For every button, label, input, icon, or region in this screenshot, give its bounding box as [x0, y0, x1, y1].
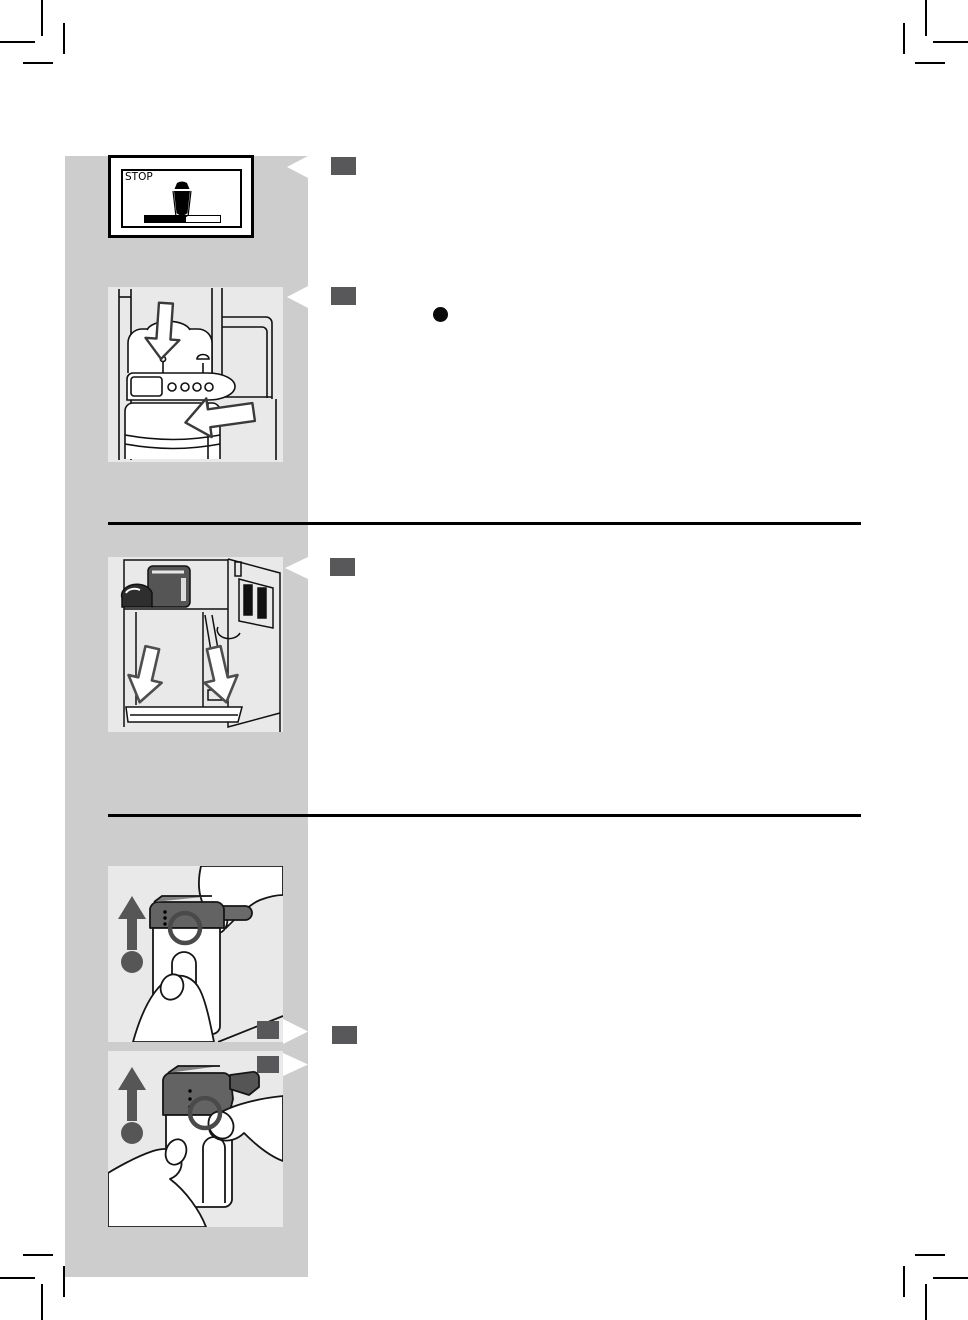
step-marker	[331, 287, 356, 305]
sub-step-marker	[257, 1021, 279, 1039]
crop-mark	[0, 41, 35, 43]
crop-mark	[41, 1284, 43, 1320]
figure-5-press-button	[108, 1051, 283, 1227]
machine-outline	[119, 288, 276, 460]
crop-mark	[925, 1284, 927, 1320]
display-screen-frame: STOP	[121, 169, 242, 228]
crop-mark	[0, 1277, 35, 1279]
crop-mark	[933, 41, 968, 43]
section-divider	[108, 814, 861, 817]
crop-mark	[63, 23, 65, 54]
crop-mark	[915, 1254, 945, 1256]
sub-step-marker	[257, 1056, 279, 1073]
carafe-lid	[163, 1073, 233, 1115]
step-marker	[331, 157, 356, 175]
step-marker	[332, 1026, 357, 1044]
section-divider	[108, 522, 861, 525]
crop-mark	[915, 62, 945, 64]
progress-bar-fill	[145, 216, 186, 222]
step-marker	[330, 558, 355, 576]
down-arrow-icon	[123, 644, 169, 706]
crop-mark	[41, 0, 43, 36]
stop-label: STOP	[125, 171, 153, 183]
progress-bar	[144, 215, 221, 223]
figure-1-display-screen: STOP	[108, 155, 254, 238]
up-arrow-icon	[118, 896, 146, 973]
down-arrow-icon	[197, 644, 243, 706]
crop-mark	[23, 62, 53, 64]
figure-2-insert-carafe	[108, 287, 283, 462]
figure-3-open-door	[108, 557, 283, 732]
bullet-point-icon	[433, 307, 448, 322]
up-arrow-icon	[118, 1067, 146, 1144]
crop-mark	[903, 1266, 905, 1297]
manual-page: STOP	[0, 0, 968, 1320]
figure-4-lift-carafe	[108, 866, 283, 1042]
crop-mark	[23, 1254, 53, 1256]
crop-mark	[903, 23, 905, 54]
carafe-spout	[230, 1072, 259, 1095]
crop-mark	[925, 0, 927, 36]
crop-mark	[933, 1277, 968, 1279]
